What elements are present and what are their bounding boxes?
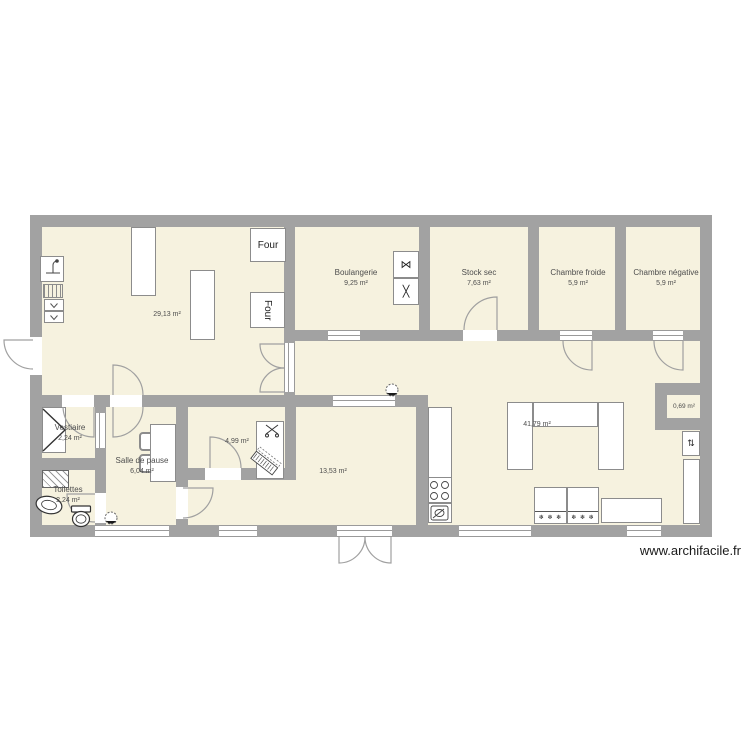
room-area: 41,79 m²: [523, 421, 551, 428]
cabinet-drawer: [44, 299, 64, 311]
room-label-vente: 41,79 m²: [523, 419, 551, 429]
wall: [30, 215, 712, 227]
wall: [419, 215, 430, 341]
cabinet: [683, 459, 700, 524]
mixer-glyph: ⋈: [401, 258, 412, 271]
window: [328, 330, 360, 341]
door-opening: [30, 337, 42, 375]
room-name: Chambre froide: [550, 268, 605, 277]
kitchen-sink: [428, 503, 452, 523]
oven-box: Four: [250, 228, 286, 262]
room-area: 9,25 m²: [344, 280, 368, 287]
door-opening: [653, 330, 683, 341]
counter: [601, 498, 662, 523]
door-opening: [176, 487, 188, 519]
room-area: 5,9 m²: [656, 280, 676, 287]
door-opening: [337, 525, 392, 537]
watermark: www.archifacile.fr: [640, 543, 741, 558]
room-label-chambre-froide: Chambre froide 5,9 m²: [550, 268, 605, 288]
door-opening: [95, 493, 106, 523]
door-opening: [205, 468, 241, 480]
door-opening: [463, 330, 497, 341]
window: [219, 525, 257, 537]
room-label-toilettes: Toilettes 2,24 m²: [53, 485, 82, 505]
room-area: 2,24 m²: [58, 435, 82, 442]
room-area: 5,9 m²: [568, 280, 588, 287]
counter-u-left: [507, 402, 533, 470]
radiator-icon: [43, 284, 63, 298]
refrigerated-case: ❄ ❄ ❄: [534, 487, 567, 524]
room-area: 4,99 m²: [225, 438, 249, 445]
room-label-bureau: 4,99 m²: [225, 436, 249, 446]
wall: [615, 215, 626, 341]
mixer-glyph: ╳: [403, 285, 410, 298]
room-area: 13,53 m²: [319, 468, 347, 475]
wall: [655, 418, 700, 430]
room-area: 0,69 m²: [673, 403, 695, 410]
room-name: Stock sec: [462, 268, 497, 277]
window: [459, 525, 531, 537]
room-area: 7,63 m²: [467, 280, 491, 287]
room-label-labo: 13,53 m²: [319, 466, 347, 476]
oven-label: Four: [258, 240, 279, 251]
door-opening: [110, 395, 142, 407]
door-arc: [339, 537, 365, 563]
oven-label: Four: [262, 300, 273, 321]
sink-unit: [40, 256, 64, 282]
snowflake-icon: ❄ ❄ ❄: [535, 511, 566, 523]
room-label-prep: 29,13 m²: [153, 309, 181, 319]
oven-box: Four: [250, 292, 285, 328]
desk: [256, 421, 284, 479]
wall: [700, 215, 712, 537]
counter-u-right: [598, 402, 624, 470]
room-area: 6,04 m²: [130, 468, 154, 475]
stove: [428, 477, 452, 503]
cabinet-drawer: [44, 311, 64, 323]
snowflake-icon: ❄ ❄ ❄: [568, 511, 598, 523]
wall: [416, 395, 428, 537]
room-area: 2,24 m²: [56, 497, 80, 504]
room-label-salle-de-pause: Salle de pause 6,04 m²: [116, 456, 169, 476]
arrows-glyph: ⇅: [687, 438, 695, 449]
room-name: Toilettes: [53, 485, 82, 494]
refrigerated-case: ❄ ❄ ❄: [567, 487, 599, 524]
window: [627, 525, 661, 537]
window: [333, 395, 395, 407]
mixer-icon: ╳: [393, 278, 419, 305]
appliance-arrows: ⇅: [682, 431, 700, 456]
wall: [285, 407, 296, 468]
room-name: Vestiaire: [55, 423, 86, 432]
door-opening: [560, 330, 592, 341]
room-name: Boulangerie: [335, 268, 378, 277]
room-label-placard: 0,69 m²: [673, 403, 695, 411]
window: [95, 525, 169, 537]
floor-plan: Four Four ⋈ ╳ ❄ ❄ ❄ ❄ ❄ ❄ ⇅: [0, 0, 750, 750]
window: [284, 343, 295, 392]
room-area: 29,13 m²: [153, 311, 181, 318]
room-label-boulangerie: Boulangerie 9,25 m²: [335, 268, 378, 288]
wall: [30, 458, 106, 470]
room-name: Salle de pause: [116, 456, 169, 465]
door-arc: [4, 340, 33, 369]
work-table: [190, 270, 215, 340]
wall: [528, 215, 539, 341]
window: [95, 413, 106, 448]
door-arc: [365, 537, 391, 563]
room-name: Chambre négative: [633, 268, 698, 277]
door-opening: [62, 395, 94, 407]
mixer-icon: ⋈: [393, 251, 419, 278]
room-label-chambre-negative: Chambre négative 5,9 m²: [633, 268, 698, 288]
room-label-vestiaire: Vestiaire 2,24 m²: [55, 423, 86, 443]
room-label-stock-sec: Stock sec 7,63 m²: [462, 268, 497, 288]
shelf: [131, 227, 156, 296]
